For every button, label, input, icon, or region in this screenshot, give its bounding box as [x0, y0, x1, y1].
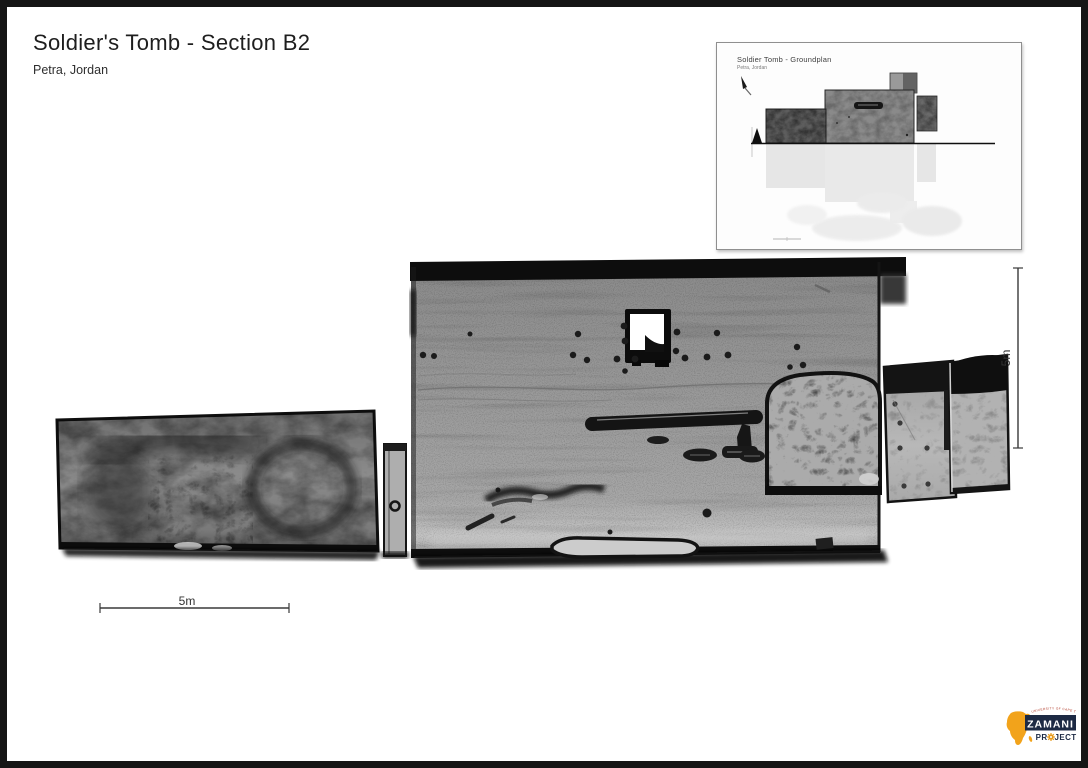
- logo-project-suffix: JECT: [1055, 733, 1077, 742]
- inset-subtitle: Petra, Jordan: [737, 65, 767, 71]
- inset-scale-bar: [773, 237, 801, 241]
- inset-title: Soldier Tomb - Groundplan: [737, 55, 832, 64]
- plan-ghost: [766, 144, 962, 241]
- right-block-a: [884, 360, 956, 502]
- floor-depression: [552, 538, 698, 557]
- right-block-b: [949, 355, 1009, 493]
- pilaster-connector: [382, 444, 408, 558]
- logo-name-text: ZAMANI: [1027, 719, 1074, 731]
- page-title: Soldier's Tomb - Section B2: [33, 30, 310, 56]
- logo-university-text: UNIVERSITY OF CAPE TOWN: [998, 700, 1077, 714]
- arched-niche: [765, 373, 882, 495]
- horizontal-scale-label: 5m: [179, 594, 196, 608]
- title-block: Soldier's Tomb - Section B2 Petra, Jorda…: [33, 30, 310, 77]
- groundplan-drawing: [717, 43, 1021, 249]
- plate-sheet: 5m 5m Soldier's Tomb - Section B2 Petra,…: [0, 0, 1088, 768]
- zamani-logo-graphic: UNIVERSITY OF CAPE TOWN ZAMANI PR JECT: [998, 700, 1080, 754]
- groundplan-inset: Soldier Tomb - Groundplan Petra, Jordan: [716, 42, 1022, 250]
- horizontal-scale-bar: 5m: [100, 594, 289, 613]
- left-rock-block: [57, 411, 380, 560]
- logo-project-prefix: PR: [1036, 733, 1048, 742]
- page-subtitle: Petra, Jordan: [33, 63, 310, 77]
- north-arrow-icon: [741, 76, 751, 95]
- plan-blocks: [766, 73, 937, 143]
- zamani-logo: UNIVERSITY OF CAPE TOWN ZAMANI PR JECT: [998, 700, 1080, 754]
- vertical-scale-label: 5m: [999, 350, 1013, 367]
